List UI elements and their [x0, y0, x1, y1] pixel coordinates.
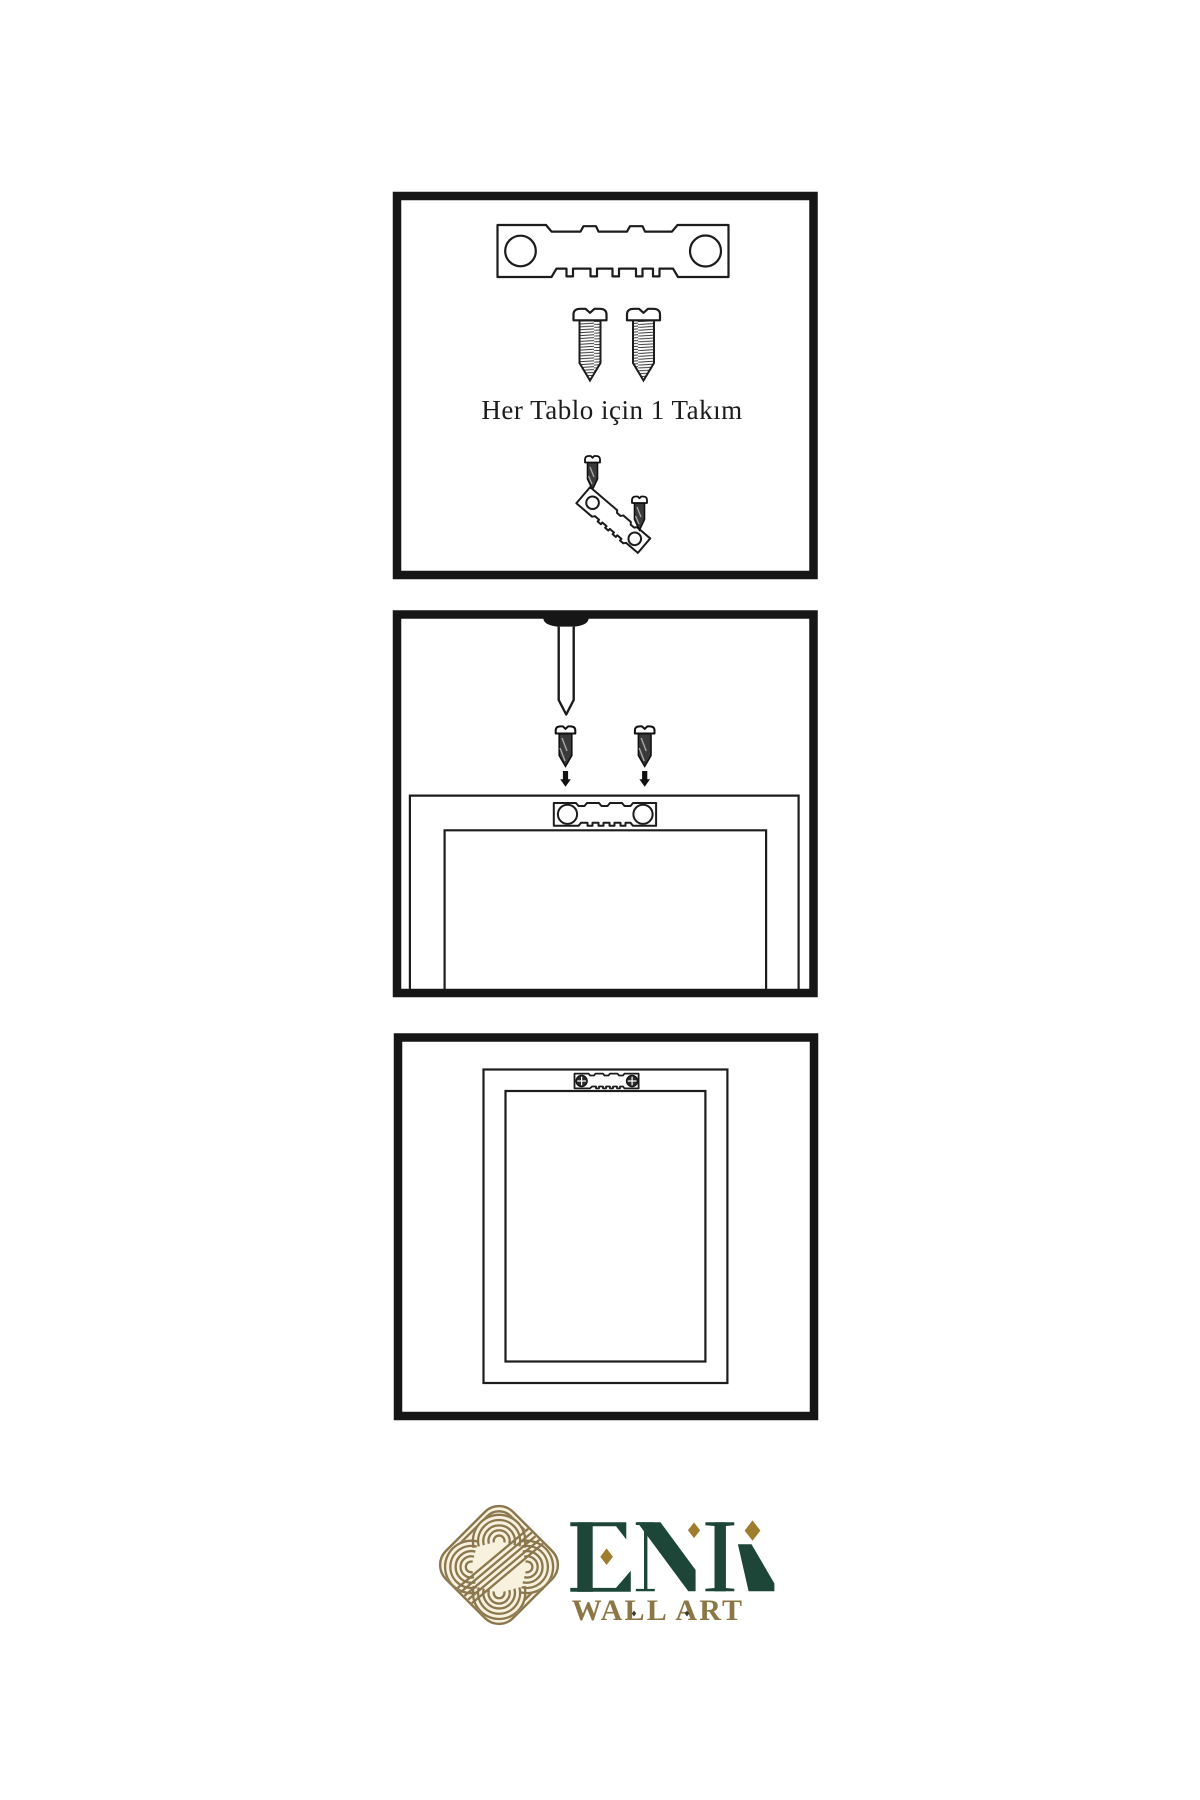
svg-text:Her Tablo için 1 Takım: Her Tablo için 1 Takım [481, 395, 742, 425]
svg-text:WALL ART: WALL ART [572, 1594, 744, 1627]
